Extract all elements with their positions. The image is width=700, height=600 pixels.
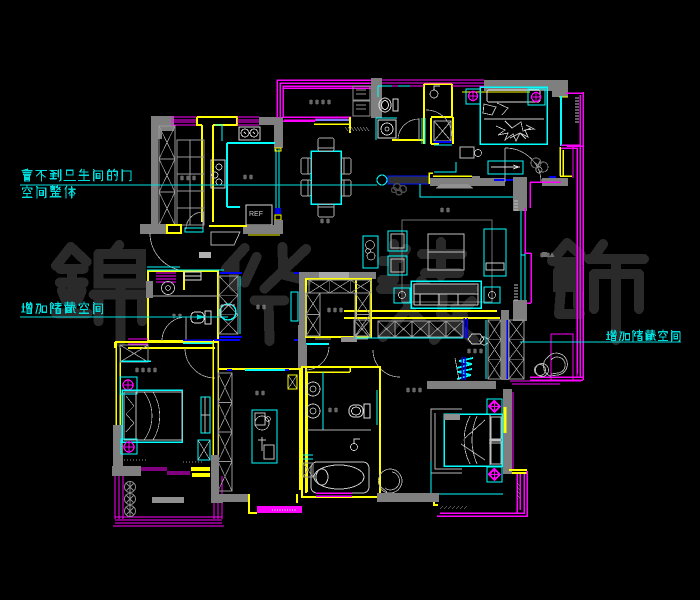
svg-text:REF: REF (249, 211, 263, 218)
